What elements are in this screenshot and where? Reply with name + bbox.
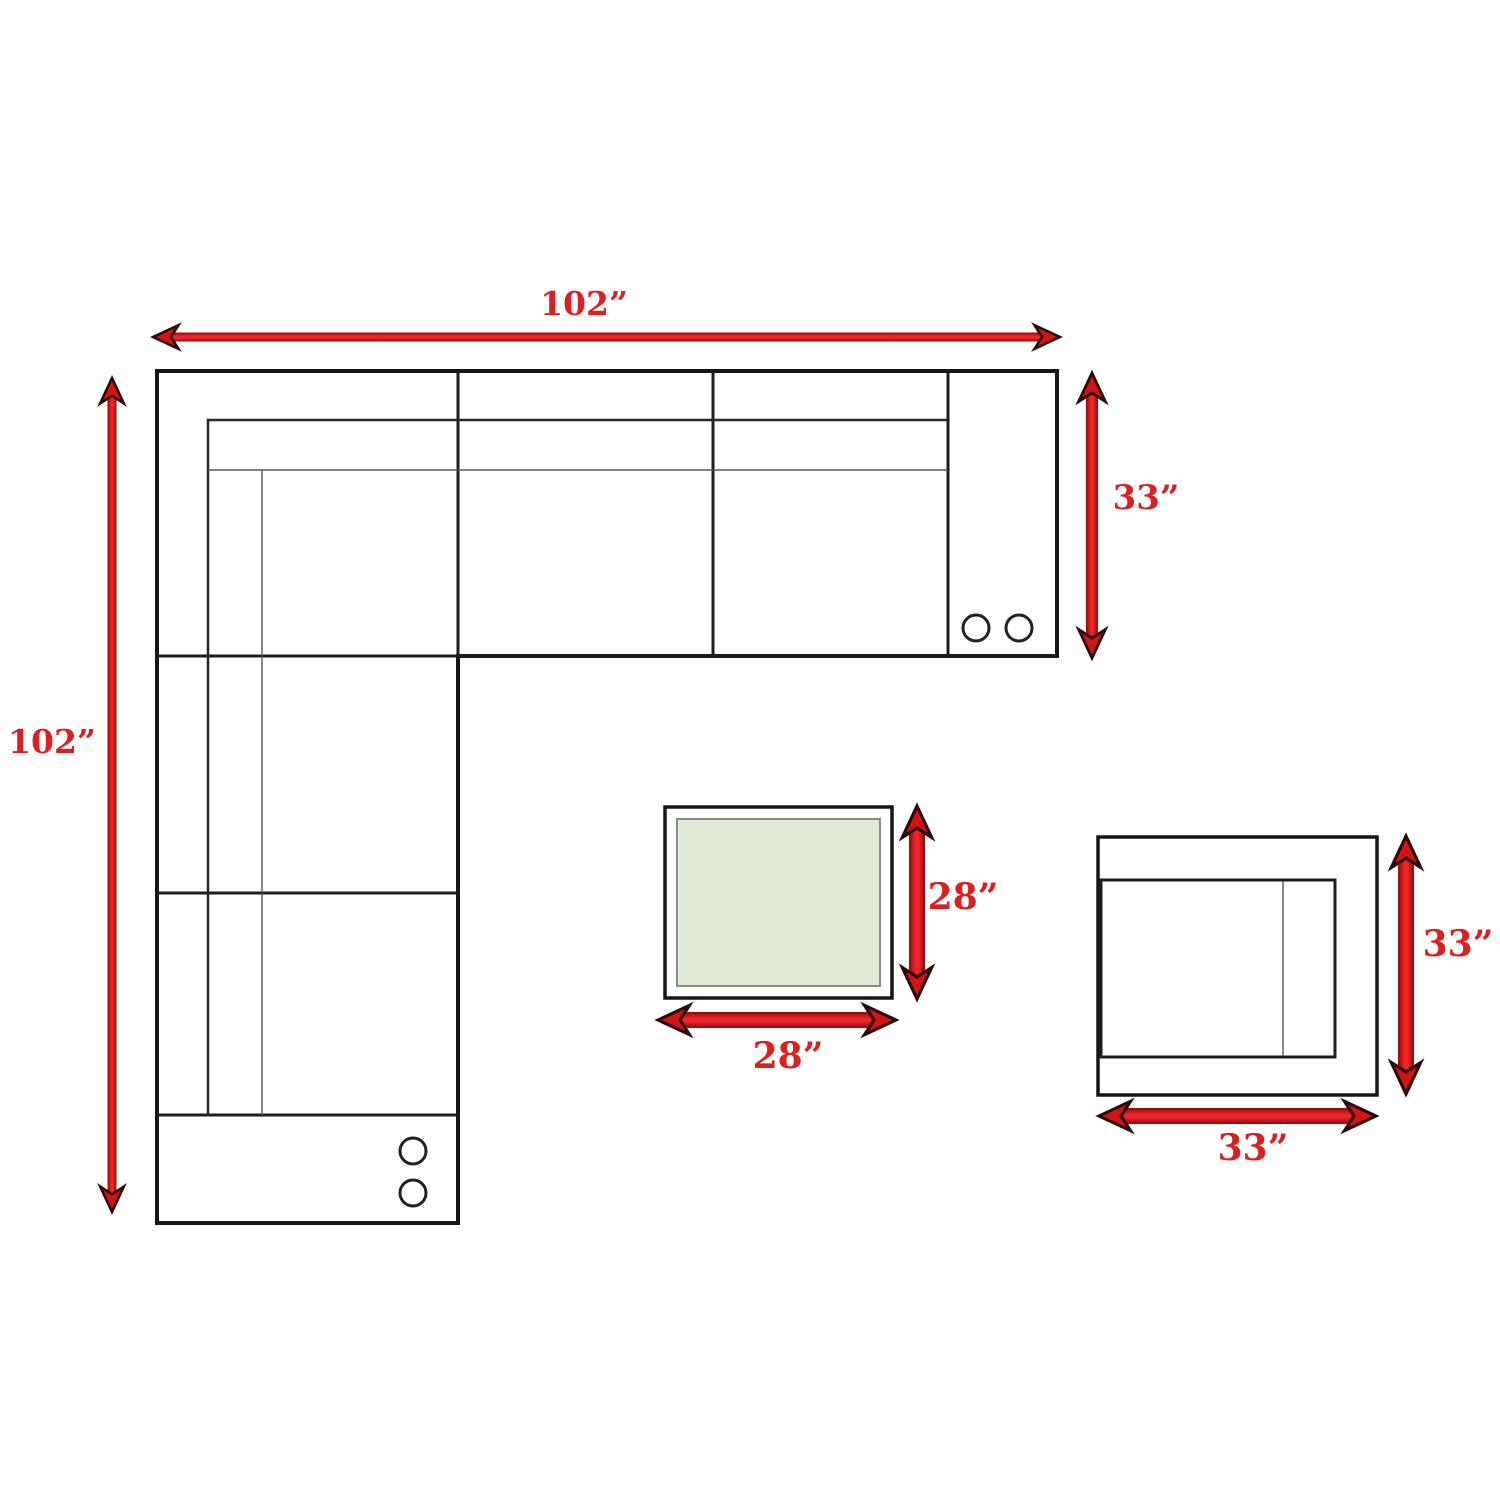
coffee-table-depth-label: 28” [928, 876, 999, 918]
dimension-arrow-sofa-depth [1079, 373, 1106, 658]
sectional-depth-label: 33” [1113, 478, 1180, 518]
chair [1098, 837, 1377, 1095]
dimension-arrow-table-width [658, 1005, 896, 1034]
diagram-svg: 102” 102” 33” 28” 28” 33” 33” [0, 0, 1500, 1500]
cupholder-icon [963, 615, 989, 641]
sectional-height-label: 102” [8, 722, 96, 761]
dimension-arrow-chair-depth [1391, 836, 1420, 1094]
arrow-shaft [108, 396, 117, 1194]
arrow-shaft [171, 333, 1042, 342]
arrow-shaft [1086, 393, 1098, 638]
arrow-shaft [680, 1012, 874, 1028]
arrow-shaft [1121, 1108, 1354, 1124]
cupholder-icon [400, 1138, 426, 1164]
sectional-width-label: 102” [540, 284, 628, 323]
furniture-dimension-diagram: 102” 102” 33” 28” 28” 33” 33” [0, 0, 1500, 1500]
coffee-table-glass-top [677, 819, 880, 986]
cupholder-icon [1006, 615, 1032, 641]
dimension-arrow-sofa-height [100, 378, 124, 1212]
sectional-sofa [157, 371, 1057, 1223]
cupholder-icon [400, 1180, 426, 1206]
chair-depth-label: 33” [1423, 923, 1494, 965]
dimension-arrow-sofa-width [153, 325, 1060, 349]
arrow-shaft [909, 828, 925, 977]
coffee-table-width-label: 28” [753, 1035, 824, 1077]
coffee-table [665, 807, 892, 998]
sectional-sofa-outline [157, 371, 1057, 1223]
chair-width-label: 33” [1218, 1127, 1289, 1169]
arrow-shaft [1398, 858, 1414, 1072]
chair-seat [1101, 880, 1335, 1057]
